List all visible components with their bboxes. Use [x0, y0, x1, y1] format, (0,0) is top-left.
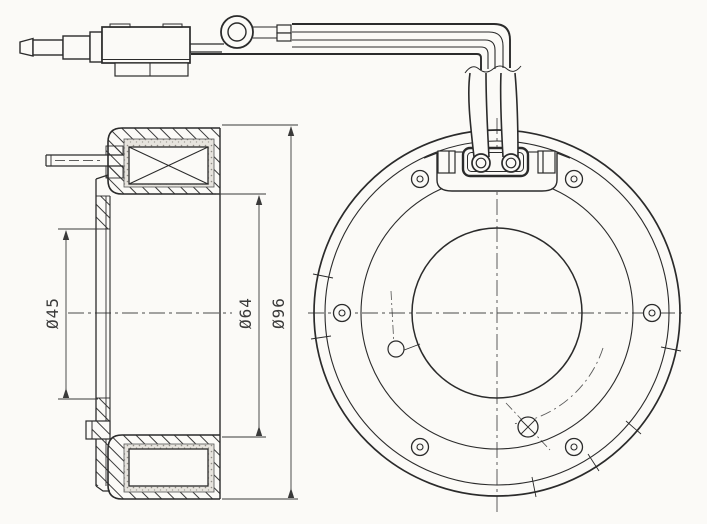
clutch-coil-drawing: Ø96 Ø64 Ø45: [0, 0, 707, 524]
dimension-label-45: Ø45: [43, 297, 62, 329]
technical-drawing-page: Ø96 Ø64 Ø45: [0, 0, 707, 524]
dimension-label-64: Ø64: [236, 297, 255, 329]
coil-winding-section: [129, 449, 208, 486]
coil-housing-bottom-section: [108, 435, 220, 499]
rivet: [412, 439, 429, 456]
plug-body: [102, 27, 190, 63]
plug-tip: [20, 39, 33, 57]
dimension-label-96: Ø96: [269, 297, 288, 329]
plug-pin: [33, 40, 63, 55]
crimp-barrel: [277, 25, 291, 33]
terminal-bracket: [424, 148, 570, 191]
stop-pin-side: [86, 421, 110, 439]
rivet: [412, 171, 429, 188]
rivet: [334, 305, 351, 322]
rivet: [566, 171, 583, 188]
rivet: [644, 305, 661, 322]
plug-lower-tab: [115, 63, 188, 76]
plug-step: [90, 32, 102, 62]
plug-collar: [63, 36, 90, 59]
coil-housing-top-section: [108, 128, 220, 194]
rivet: [566, 439, 583, 456]
